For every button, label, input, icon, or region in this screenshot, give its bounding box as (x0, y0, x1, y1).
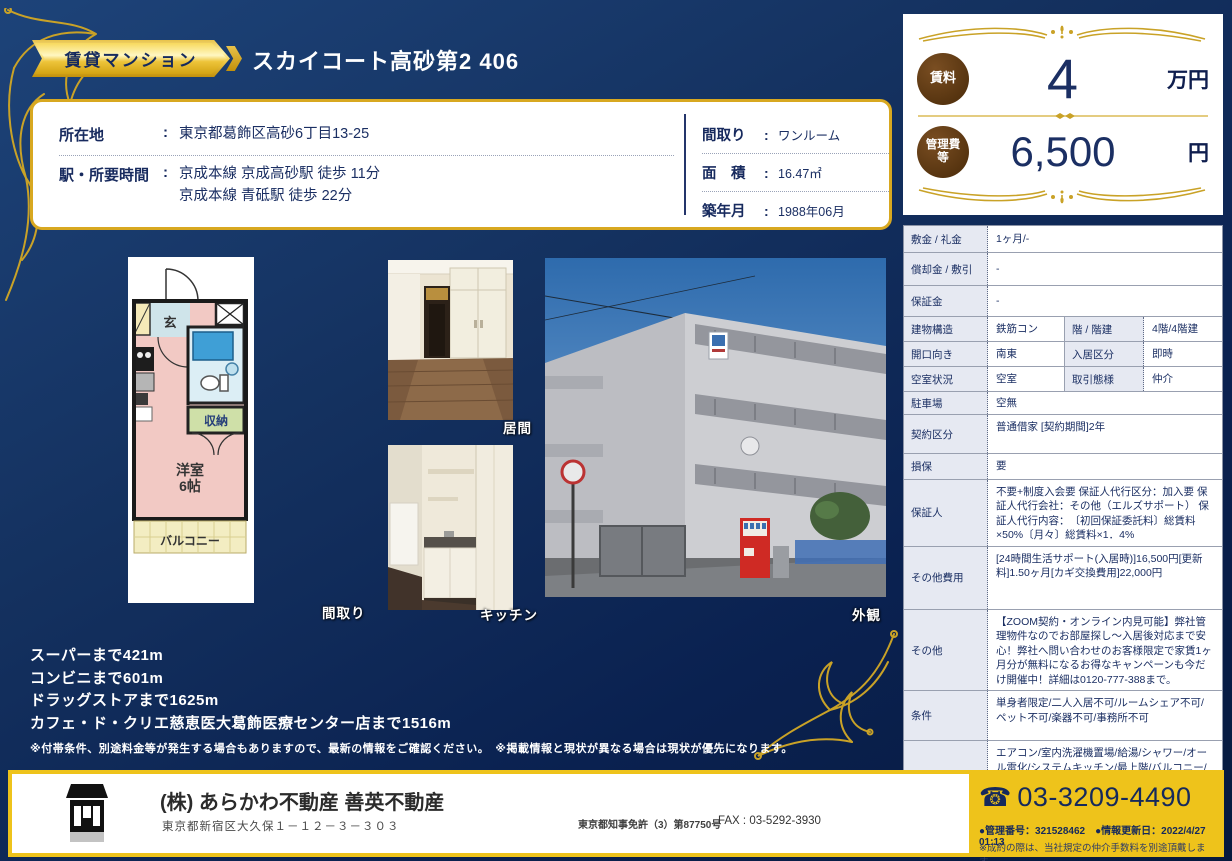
disclaimer-note: ※付帯条件、別途料金等が発生する場合もありますので、最新の情報をご確認ください。… (30, 740, 793, 756)
station-label: 駅・所要時間 (59, 164, 163, 185)
rent-value: 4 (969, 46, 1157, 111)
location-row: 所在地 : 東京都葛飾区高砂6丁目13-25 (59, 116, 674, 155)
company-name: (株) あらかわ不動産 善英不動産 (160, 786, 444, 815)
price-panel: 賃料 4 万円 管理費等 6,500 円 (903, 14, 1223, 215)
area-label: 面 積 (702, 162, 764, 183)
fee-row: 管理費等 6,500 円 (913, 121, 1213, 183)
license-number: 東京都知事免許（3）第87750号 (578, 816, 721, 831)
exterior-photo[interactable] (545, 258, 886, 597)
station-value: 京成本線 京成高砂駅 徒歩 11分 京成本線 青砥駅 徒歩 22分 (179, 164, 380, 208)
location-value: 東京都葛飾区高砂6丁目13-25 (179, 124, 369, 146)
floorplan-image[interactable]: 玄 収納 洋室 6帖 (128, 257, 254, 603)
price-divider (913, 111, 1213, 121)
layout-row: 間取り : ワンルーム (702, 116, 889, 153)
table-row: 建物構造 鉄筋コン 階 / 階建 4階/4階建 (904, 317, 1222, 342)
fee-unit: 円 (1157, 137, 1209, 167)
table-row: 空室状況 空室 取引態様 仲介 (904, 367, 1222, 392)
info-right-section: 間取り : ワンルーム 面 積 : 16.47㎡ 築年月 : 1988年06月 (684, 114, 889, 215)
svg-text:6帖: 6帖 (179, 478, 201, 494)
page-title: スカイコート高砂第2 406 (252, 44, 519, 76)
floorplan-balcony-label: バルコニー (160, 534, 220, 548)
distance-item: コンビニまで601m (30, 668, 451, 691)
living-room-caption: 居間 (503, 417, 532, 437)
built-label: 築年月 (702, 200, 764, 221)
built-row: 築年月 : 1988年06月 (702, 191, 889, 229)
table-row: その他費用 [24時間生活サポート(入居時)]16,500円[更新料]1.50ヶ… (904, 547, 1222, 610)
fee-label-circle: 管理費等 (917, 126, 969, 178)
commission-note: ※成約の際は、当社規定の仲介手数料を別途頂戴します。 (979, 840, 1220, 861)
exterior-caption: 外観 (852, 604, 881, 624)
agency-footer: (株) あらかわ不動産 善英不動産 東京都新宿区大久保１－１２－３－３０３ 東京… (8, 770, 1224, 857)
kitchen-photo[interactable] (388, 445, 513, 610)
area-row: 面 積 : 16.47㎡ (702, 153, 889, 191)
floorplan-storage-label: 収納 (204, 413, 228, 428)
area-value: 16.47㎡ (778, 163, 822, 182)
fax-number: FAX : 03-5292-3930 (718, 815, 821, 827)
nearby-distances: スーパーまで421m コンビニまで601m ドラッグストアまで1625m カフェ… (30, 645, 451, 735)
location-label: 所在地 (59, 124, 163, 145)
badge-label: 賃貸マンション (65, 46, 198, 71)
built-value: 1988年06月 (778, 201, 845, 220)
table-row: 開口向き 南東 入居区分 即時 (904, 342, 1222, 367)
store-icon (60, 780, 114, 848)
rent-row: 賃料 4 万円 (913, 46, 1213, 111)
agency-info: (株) あらかわ不動産 善英不動産 東京都新宿区大久保１－１２－３－３０３ 東京… (12, 774, 969, 853)
floorplan-entrance-label: 玄 (163, 315, 176, 330)
fee-value: 6,500 (969, 128, 1157, 176)
layout-label: 間取り (702, 124, 764, 145)
table-row: 償却金 / 敷引 - (904, 253, 1222, 286)
table-row: その他 【ZOOM契約・オンライン内見可能】弊社管理物件なのでお部屋探し～入居後… (904, 610, 1222, 691)
distance-item: スーパーまで421m (30, 645, 451, 668)
phone-row[interactable]: ☎ 03-3209-4490 (979, 782, 1192, 813)
property-type-badge: 賃貸マンション (32, 40, 230, 77)
price-bottom-ornament (913, 183, 1211, 209)
table-row: 駐車場 空無 (904, 392, 1222, 415)
table-row: 契約区分 普通借家 [契約期間]2年 (904, 415, 1222, 454)
table-row: 条件 単身者限定/二人入居不可/ルームシェア不可/ペット不可/楽器不可/事務所不… (904, 691, 1222, 741)
distance-item: ドラッグストアまで1625m (30, 690, 451, 713)
floorplan-room-label: 洋室 (176, 462, 204, 478)
phone-icon: ☎ (979, 785, 1011, 811)
table-row: 損保 要 (904, 454, 1222, 480)
table-row: 保証金 - (904, 286, 1222, 317)
phone-number: 03-3209-4490 (1017, 782, 1191, 813)
company-address: 東京都新宿区大久保１－１２－３－３０３ (162, 818, 400, 834)
rent-label-circle: 賃料 (917, 53, 969, 105)
property-info-box: 所在地 : 東京都葛飾区高砂6丁目13-25 駅・所要時間 : 京成本線 京成高… (30, 99, 892, 230)
distance-item: カフェ・ド・クリエ慈恵医大葛飾医療センター店まで1516m (30, 713, 451, 736)
table-row: 保証人 不要+制度入会要 保証人代行区分：加入要 保証人代行会社：その他（エルズ… (904, 480, 1222, 547)
living-room-photo[interactable] (388, 260, 513, 420)
table-row: 敷金 / 礼金 1ヶ月/- (904, 226, 1222, 253)
contact-block: ☎ 03-3209-4490 ●管理番号：321528462 ●情報更新日：20… (969, 774, 1220, 853)
listing-flyer: 賃貸マンション スカイコート高砂第2 406 所在地 : 東京都葛飾区高砂6丁目… (0, 0, 1232, 861)
floorplan-caption: 間取り (322, 602, 366, 622)
rent-unit: 万円 (1157, 64, 1209, 94)
spec-table: 敷金 / 礼金 1ヶ月/- 償却金 / 敷引 - 保証金 - 建物構造 鉄筋コン… (903, 225, 1223, 824)
station-row: 駅・所要時間 : 京成本線 京成高砂駅 徒歩 11分 京成本線 青砥駅 徒歩 2… (59, 155, 674, 217)
kitchen-caption: キッチン (480, 604, 538, 624)
price-top-ornament (913, 20, 1211, 46)
info-left-section: 所在地 : 東京都葛飾区高砂6丁目13-25 駅・所要時間 : 京成本線 京成高… (33, 102, 684, 227)
layout-value: ワンルーム (778, 125, 840, 144)
